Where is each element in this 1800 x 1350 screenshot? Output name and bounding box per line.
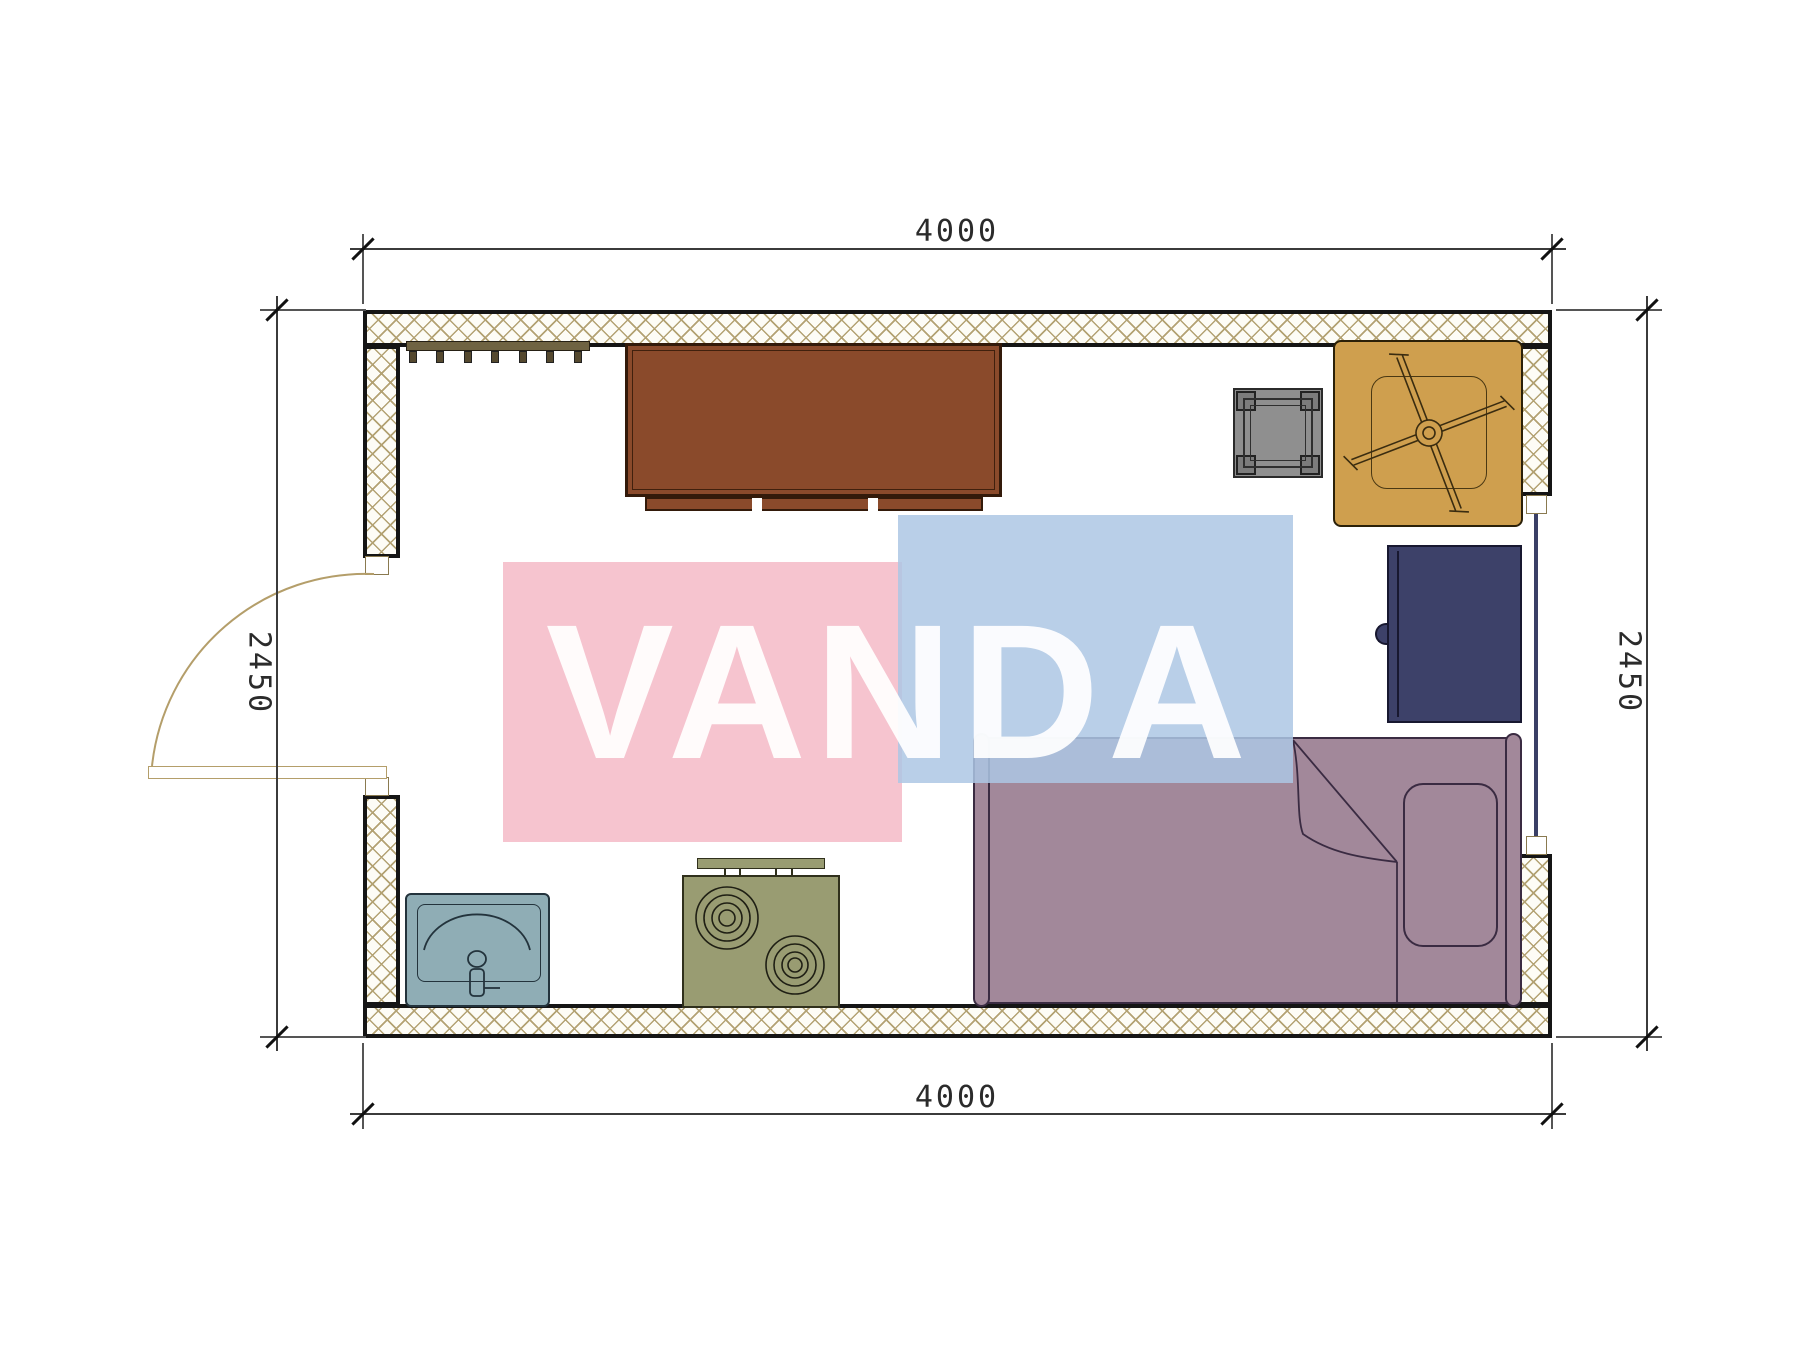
stove [682,875,840,1008]
dimension-label-bottom: 4000 [915,1080,999,1115]
wall-bottom [363,1004,1552,1038]
floor-plan: VANDA 4000 4000 2450 2450 [0,0,1800,1350]
dimension-label-right: 2450 [1612,630,1647,714]
cabinet [625,343,1002,497]
door-jamb-top [365,556,389,575]
wall-left-lower [363,795,400,1006]
dimension-label-left: 2450 [242,631,277,715]
coat-rack-hook [436,351,444,363]
coat-rack-hook [491,351,499,363]
window-jamb-bottom [1526,836,1547,855]
watermark-text: VANDA [500,597,1300,787]
cabinet-plinth [645,497,983,511]
coat-rack-hook [409,351,417,363]
coat-rack [406,341,590,351]
wardrobe-door-line [1397,551,1399,717]
extension-line [1551,234,1553,304]
window-glass [1534,514,1538,836]
bed-pillow [1403,783,1498,947]
coat-rack-hook [464,351,472,363]
bed-headboard [1505,733,1522,1007]
sink [405,893,550,1007]
wall-left-upper [363,345,400,558]
door-leaf [148,766,387,779]
coat-rack-hook [519,351,527,363]
cabinet-plinth-gap [752,498,762,511]
wardrobe [1387,545,1522,723]
cabinet-plinth-gap [868,498,878,511]
door-jamb-bottom [365,777,389,796]
extension-line [362,234,364,304]
table [1333,340,1523,527]
stool [1233,388,1323,478]
coat-rack-hook [546,351,554,363]
window-jamb-top [1526,495,1547,514]
coat-rack-hook [574,351,582,363]
stove-back-bar [697,858,825,869]
dimension-label-top: 4000 [915,214,999,249]
table-inner-outline [1371,376,1487,489]
